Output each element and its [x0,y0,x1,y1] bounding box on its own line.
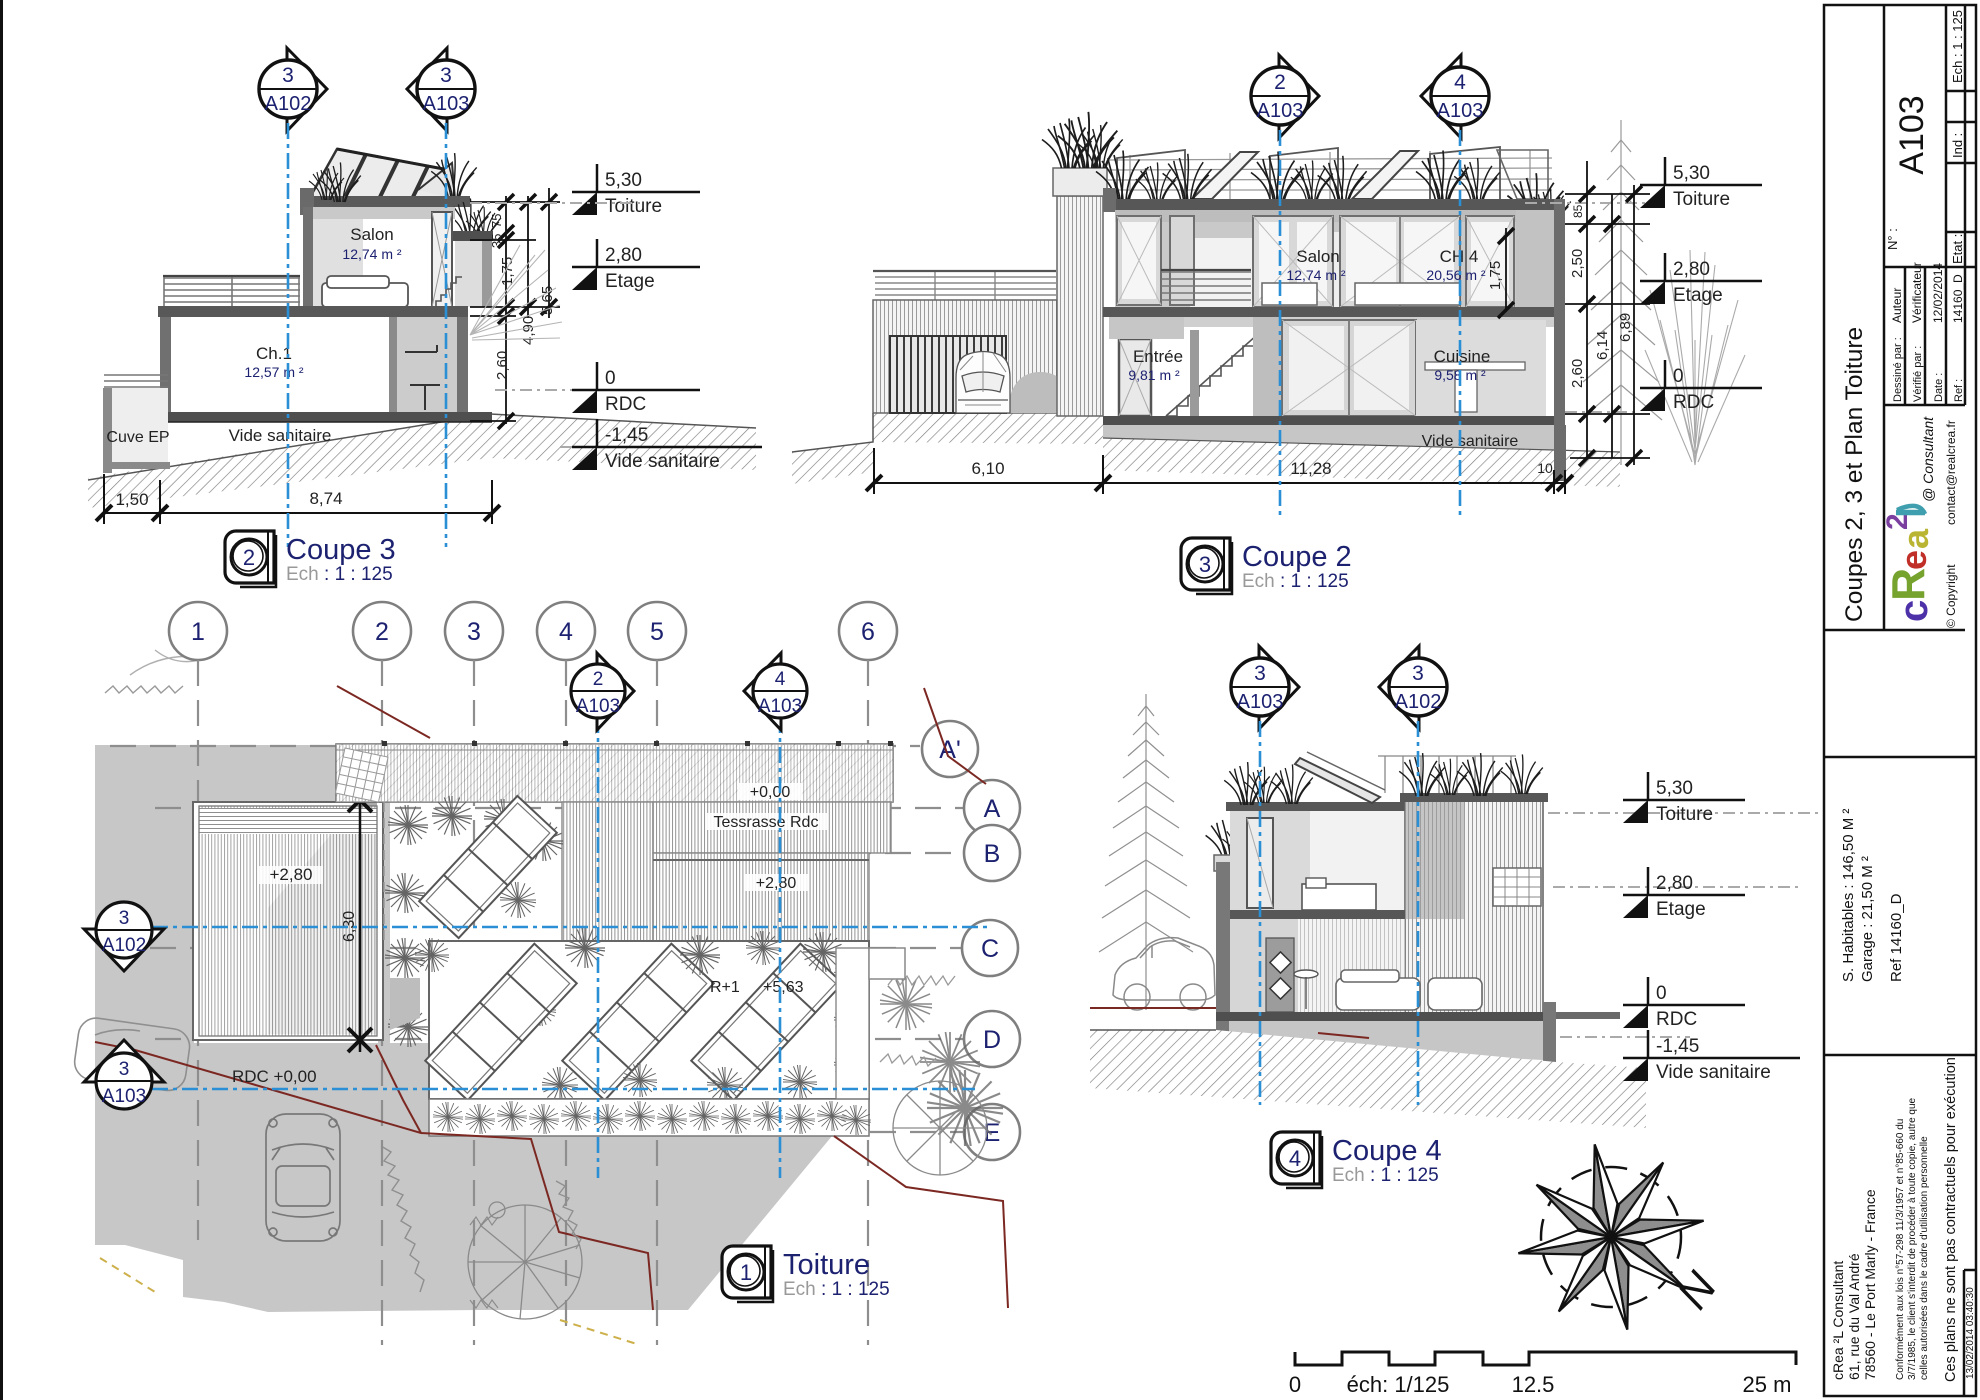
svg-text:e: e [1893,550,1934,570]
svg-text:© Copyright: © Copyright [1944,564,1958,628]
svg-text:2,50: 2,50 [1569,249,1586,278]
svg-text:contact@realcrea.fr: contact@realcrea.fr [1944,420,1958,525]
svg-text:D: D [983,1026,1001,1054]
svg-text:Vide sanitaire: Vide sanitaire [605,451,720,472]
svg-text:celles autorisées dans le cadr: celles autorisées dans le cadre d'utilis… [1919,1136,1930,1380]
svg-text:6,89: 6,89 [1617,313,1634,342]
svg-text:Etage: Etage [605,271,655,292]
svg-text:12,57 m ²: 12,57 m ² [244,364,303,380]
svg-text:Conformément aux lois n°57-298: Conformément aux lois n°57-298 11/3/1957… [1895,1119,1906,1380]
svg-text:6: 6 [861,618,875,646]
svg-text:+2,80: +2,80 [269,865,312,884]
svg-text:RDC: RDC [1673,392,1714,413]
svg-text:Cuve EP: Cuve EP [106,429,169,446]
svg-text:a: a [1895,528,1936,549]
svg-text:2: 2 [375,618,389,646]
svg-text:0: 0 [605,368,616,389]
svg-text:2,80: 2,80 [605,245,642,266]
svg-text:Tessrasse Rdc: Tessrasse Rdc [714,814,819,831]
svg-text:Vide sanitaire: Vide sanitaire [1422,433,1519,450]
svg-text:A103: A103 [423,93,470,115]
svg-text:2,60: 2,60 [1569,359,1586,388]
svg-text:N° :: N° : [1885,228,1900,250]
svg-text:Coupes 2, 3 et Plan Toiture: Coupes 2, 3 et Plan Toiture [1841,327,1868,622]
svg-text:4: 4 [1289,1146,1301,1171]
svg-text:1,75: 1,75 [1487,261,1504,290]
svg-text:3: 3 [440,64,452,87]
svg-text:9,81 m ²: 9,81 m ² [1128,367,1180,383]
svg-text:Auteur: Auteur [1890,288,1904,323]
svg-text:Ech : 1 : 125: Ech : 1 : 125 [1242,571,1349,592]
svg-text:25 m: 25 m [1743,1372,1792,1397]
svg-text:10: 10 [1537,460,1553,476]
svg-text:12,74 m ²: 12,74 m ² [1286,267,1345,283]
svg-text:61, rue du Val André: 61, rue du Val André [1846,1253,1862,1380]
svg-text:5: 5 [650,618,664,646]
svg-text:4,90: 4,90 [520,316,537,345]
svg-text:Ces plans ne sont pas contract: Ces plans ne sont pas contractuels pour … [1943,1057,1959,1382]
svg-text:@ Consultant: @ Consultant [1920,416,1936,502]
svg-text:14160_D: 14160_D [1951,274,1965,323]
svg-text:20,56 m ²: 20,56 m ² [1426,267,1485,283]
svg-text:A103: A103 [1893,95,1931,174]
svg-text:A103: A103 [1237,691,1284,713]
svg-text:Ech : 1 : 125: Ech : 1 : 125 [1332,1165,1439,1186]
svg-text:3: 3 [119,908,130,929]
svg-text:Dessiné par :: Dessiné par : [1892,337,1904,402]
svg-text:R+1: R+1 [710,979,740,996]
svg-text:Coupe 2: Coupe 2 [1242,541,1352,573]
svg-text:Etage: Etage [1656,899,1706,920]
svg-text:12.5: 12.5 [1512,1372,1555,1397]
svg-text:S. Habitables : 146,50 M ²: S. Habitables : 146,50 M ² [1840,809,1857,982]
svg-text:0: 0 [1289,1372,1301,1397]
svg-text:3: 3 [1412,662,1424,685]
svg-text:8,74: 8,74 [309,489,342,508]
svg-text:Vérifié par :: Vérifié par : [1912,346,1924,402]
svg-text:11,28: 11,28 [1290,459,1331,478]
svg-text:A103: A103 [576,696,620,717]
svg-text:Salon: Salon [350,225,393,244]
svg-text:3: 3 [1199,552,1211,577]
svg-text:2: 2 [243,545,255,570]
svg-text:3: 3 [282,64,294,87]
svg-text:A103: A103 [1257,100,1304,122]
svg-text:-1,45: -1,45 [1656,1036,1699,1057]
svg-text:Coupe 4: Coupe 4 [1332,1135,1442,1167]
svg-text:2,60: 2,60 [494,351,511,380]
svg-text:A103: A103 [758,696,802,717]
svg-text:Toiture: Toiture [605,196,662,217]
svg-text:3: 3 [119,1059,130,1080]
svg-text:C: C [981,935,999,963]
svg-text:85: 85 [1571,204,1585,218]
svg-text:12,74 m ²: 12,74 m ² [342,246,401,262]
svg-text:Ref :: Ref : [1953,379,1965,402]
svg-text:A102: A102 [265,93,312,115]
svg-text:RDC: RDC [605,394,646,415]
svg-text:Toiture: Toiture [1656,804,1713,825]
svg-text:Ech : 1 : 125: Ech : 1 : 125 [286,564,393,585]
svg-text:12/02/2014: 12/02/2014 [1931,263,1945,323]
svg-text:cRea ²L Consultant: cRea ²L Consultant [1830,1261,1846,1380]
svg-text:RDC: RDC [1656,1009,1697,1030]
svg-text:R: R [1882,568,1934,601]
svg-text:c: c [1892,600,1936,622]
svg-text:+2,80: +2,80 [756,875,797,892]
svg-text:Ch.1: Ch.1 [256,344,292,363]
svg-text:5,30: 5,30 [605,170,642,191]
svg-text:Ref 14160_D: Ref 14160_D [1888,893,1905,982]
svg-text:Vérificateur: Vérificateur [1910,262,1924,323]
svg-text:1: 1 [191,618,205,646]
svg-text:+0,00: +0,00 [750,784,791,801]
svg-text:A103: A103 [102,1086,146,1107]
svg-text:Date :: Date : [1933,373,1945,402]
svg-text:RDC +0,00: RDC +0,00 [232,1067,317,1086]
svg-text:2: 2 [1274,71,1286,94]
svg-text:2,80: 2,80 [1656,873,1693,894]
svg-text:Ind :: Ind : [1950,133,1965,158]
svg-text:0: 0 [1656,983,1667,1004]
svg-text:éch: 1/125: éch: 1/125 [1347,1372,1450,1397]
svg-text:3/7/1985, le client s'interdit: 3/7/1985, le client s'interdit de procéd… [1907,1097,1918,1380]
svg-text:35: 35 [489,234,504,248]
svg-text:3: 3 [1254,662,1266,685]
svg-text:1,50: 1,50 [115,490,148,509]
svg-text:Ech : 1 : 125: Ech : 1 : 125 [783,1279,890,1300]
svg-text:Garage : 21,50 M ²: Garage : 21,50 M ² [1859,856,1876,982]
svg-text:13/02/2014 03:40:30: 13/02/2014 03:40:30 [1965,1287,1976,1379]
svg-text:Toiture: Toiture [783,1249,870,1281]
svg-text:3: 3 [467,618,481,646]
svg-text:Cuisine: Cuisine [1434,347,1491,366]
svg-text:75: 75 [489,214,504,228]
svg-text:2,80: 2,80 [1673,259,1710,280]
svg-text:6,10: 6,10 [971,459,1004,478]
svg-text:+5,63: +5,63 [763,979,804,996]
svg-text:-1,45: -1,45 [605,425,648,446]
svg-text:5,30: 5,30 [1656,778,1693,799]
svg-text:A: A [984,795,1001,823]
svg-text:Ech : 1 : 125: Ech : 1 : 125 [1950,10,1965,83]
svg-text:4: 4 [559,618,573,646]
svg-text:A103: A103 [1437,100,1484,122]
svg-text:6,14: 6,14 [1594,331,1611,360]
svg-text:Vide sanitaire: Vide sanitaire [229,426,332,445]
svg-text:4: 4 [775,669,786,690]
svg-text:Etat :: Etat : [1950,234,1965,264]
svg-text:Toiture: Toiture [1673,189,1730,210]
svg-text:2: 2 [593,669,604,690]
svg-text:1: 1 [740,1260,752,1285]
svg-text:Coupe 3: Coupe 3 [286,534,396,566]
svg-text:4: 4 [1454,71,1466,94]
svg-text:Etage: Etage [1673,285,1723,306]
svg-text:A102: A102 [1395,691,1442,713]
svg-text:B: B [984,840,1001,868]
svg-text:Vide sanitaire: Vide sanitaire [1656,1062,1771,1083]
svg-text:Entrée: Entrée [1133,347,1183,366]
svg-text:A102: A102 [102,935,146,956]
svg-text:Salon: Salon [1296,247,1339,266]
svg-text:0: 0 [1673,366,1684,387]
svg-text:78560 - Le Port Marly - France: 78560 - Le Port Marly - France [1862,1189,1878,1380]
svg-text:5,30: 5,30 [1673,163,1710,184]
